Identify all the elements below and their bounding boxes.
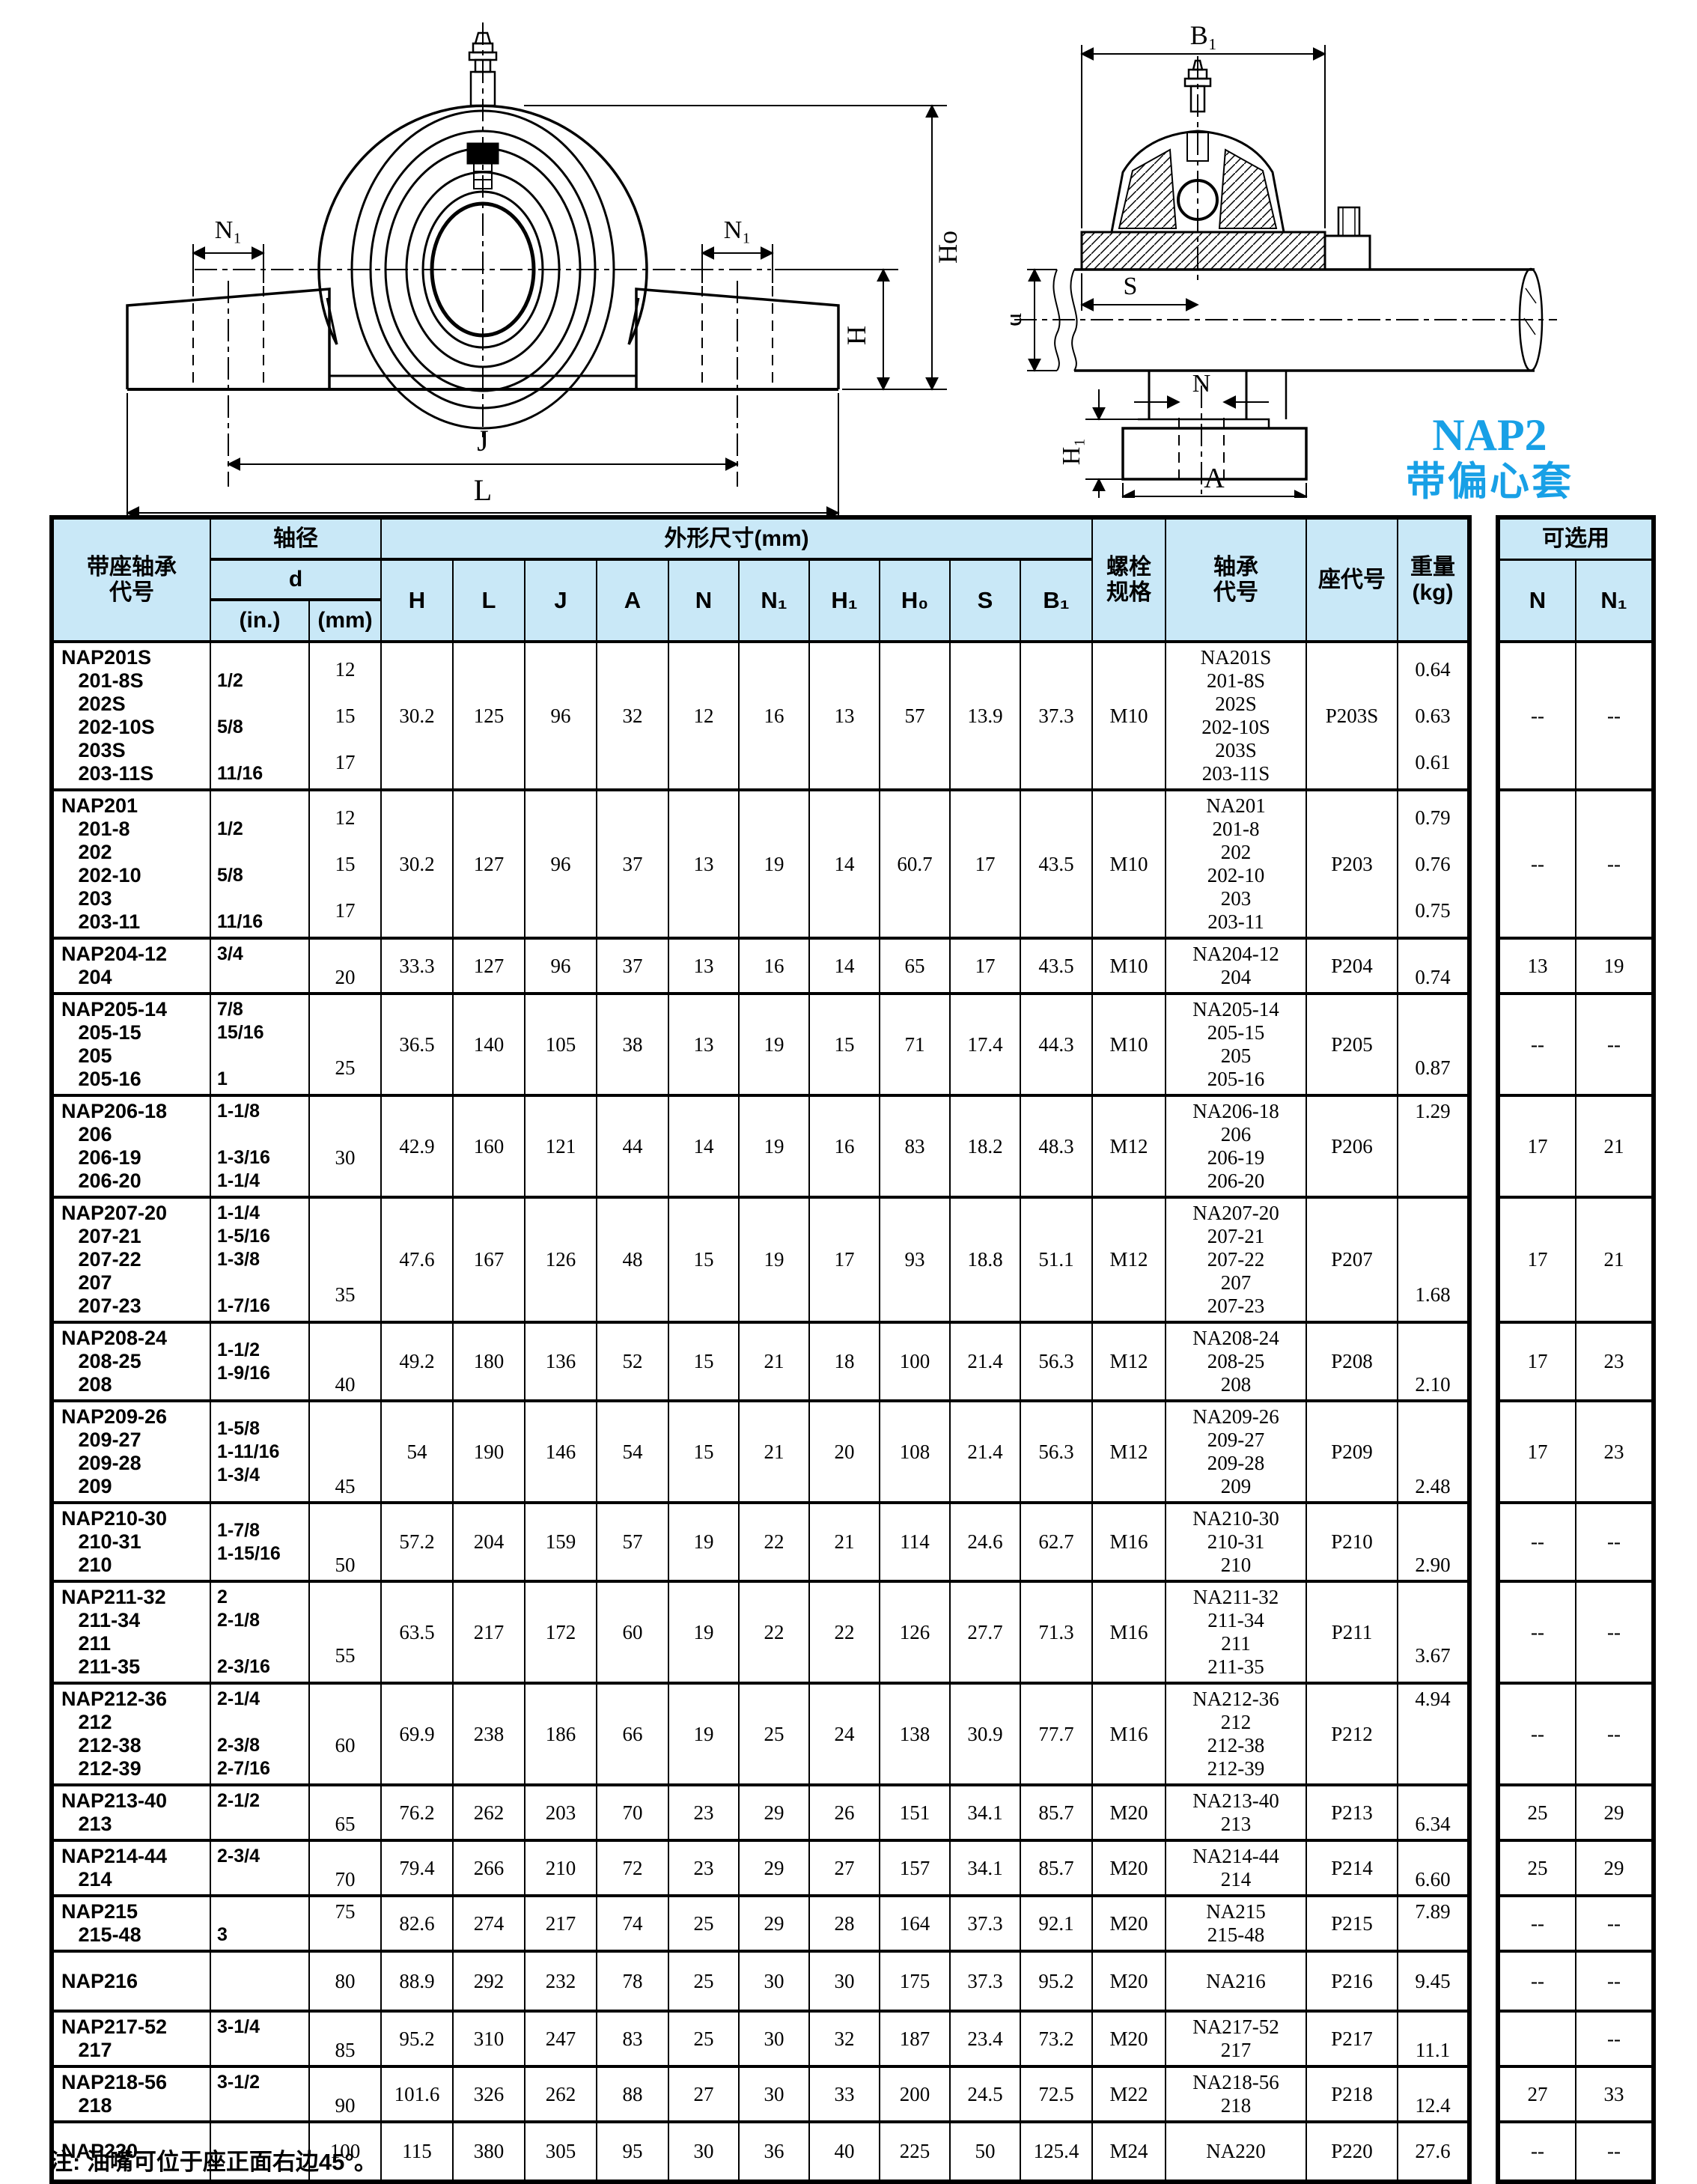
cell-d-mm: 80 — [309, 1951, 381, 2011]
cell-h: 82.6 — [381, 1896, 453, 1951]
cell-n1: 36 — [739, 2122, 809, 2182]
cell-opt-n: -- — [1498, 1503, 1576, 1581]
cell-bearing: NA210-30 210-31 210 — [1166, 1503, 1306, 1581]
cell-opt-n1: 29 — [1576, 1785, 1654, 1840]
cell-opt-n: 13 — [1498, 938, 1576, 994]
cell-code: NAP217-52 217 — [52, 2011, 210, 2066]
cell-h0: 108 — [880, 1401, 950, 1503]
table-gap — [1469, 790, 1498, 938]
cell-weight: 11.1 — [1398, 2011, 1469, 2066]
cell-n1: 30 — [739, 1951, 809, 2011]
table-row: NAP201 201-8 202 202-10 203 203-11 1/2 5… — [52, 790, 1654, 938]
cell-n: 27 — [668, 2066, 739, 2122]
table-gap — [1469, 1581, 1498, 1683]
cell-l: 180 — [453, 1322, 525, 1401]
cell-weight: 0.64 0.63 0.61 — [1398, 642, 1469, 790]
cell-h1: 17 — [809, 1197, 880, 1322]
header-bolt-spec: 螺栓 规格 — [1092, 517, 1166, 642]
cell-b1: 43.5 — [1020, 790, 1092, 938]
cell-weight: 1.68 — [1398, 1197, 1469, 1322]
cell-d-in: 1-1/4 1-5/16 1-3/8 1-7/16 — [210, 1197, 309, 1322]
cell-seat: P218 — [1306, 2066, 1398, 2122]
cell-l: 326 — [453, 2066, 525, 2122]
cell-bearing: NA206-18 206 206-19 206-20 — [1166, 1095, 1306, 1197]
cell-j: 172 — [525, 1581, 597, 1683]
cell-h: 33.3 — [381, 938, 453, 994]
cell-code: NAP205-14 205-15 205 205-16 — [52, 994, 210, 1095]
cell-h1: 21 — [809, 1503, 880, 1581]
cell-code: NAP216 — [52, 1951, 210, 2011]
cell-n1: 30 — [739, 2066, 809, 2122]
cell-bearing: NA220 — [1166, 2122, 1306, 2182]
table-row: NAP206-18 206 206-19 206-201-1/8 1-3/16 … — [52, 1095, 1654, 1197]
header-d-inch: (in.) — [210, 600, 309, 642]
cell-n1: 21 — [739, 1322, 809, 1401]
cell-a: 78 — [597, 1951, 668, 2011]
cell-h1: 27 — [809, 1840, 880, 1896]
cell-s: 17 — [950, 790, 1020, 938]
cell-bearing: NA217-52 217 — [1166, 2011, 1306, 2066]
cell-l: 167 — [453, 1197, 525, 1322]
cell-bolt: M16 — [1092, 1503, 1166, 1581]
cell-bolt: M24 — [1092, 2122, 1166, 2182]
table-gap — [1469, 1095, 1498, 1197]
table-gap — [1469, 1785, 1498, 1840]
cell-h: 36.5 — [381, 994, 453, 1095]
header-opt-n1: N₁ — [1576, 559, 1654, 642]
cell-bearing: NA201S 201-8S 202S 202-10S 203S 203-11S — [1166, 642, 1306, 790]
cell-seat: P215 — [1306, 1896, 1398, 1951]
cell-d-in: 1-5/8 1-11/16 1-3/4 — [210, 1401, 309, 1503]
cell-seat: P210 — [1306, 1503, 1398, 1581]
cell-opt-n1: -- — [1576, 1951, 1654, 2011]
cell-b1: 56.3 — [1020, 1401, 1092, 1503]
cell-b1: 37.3 — [1020, 642, 1092, 790]
header-d-mm: (mm) — [309, 600, 381, 642]
table-row: NAP209-26 209-27 209-28 2091-5/8 1-11/16… — [52, 1401, 1654, 1503]
cell-seat: P204 — [1306, 938, 1398, 994]
cell-s: 21.4 — [950, 1401, 1020, 1503]
table-header: 带座轴承 代号 轴径 外形尺寸(mm) 螺栓 规格 轴承 代号 座代号 重量 (… — [52, 517, 1654, 642]
cell-n: 19 — [668, 1581, 739, 1683]
table-gap — [1469, 517, 1498, 642]
cell-opt-n1: -- — [1576, 790, 1654, 938]
cell-bearing: NA201 201-8 202 202-10 203 203-11 — [1166, 790, 1306, 938]
cell-j: 186 — [525, 1683, 597, 1785]
cell-a: 95 — [597, 2122, 668, 2182]
cell-weight: 0.74 — [1398, 938, 1469, 994]
cell-bolt: M10 — [1092, 994, 1166, 1095]
header-housing-code: 带座轴承 代号 — [52, 517, 210, 642]
cell-h: 63.5 — [381, 1581, 453, 1683]
table-gap — [1469, 994, 1498, 1095]
cell-n1: 22 — [739, 1581, 809, 1683]
cell-weight: 9.45 — [1398, 1951, 1469, 2011]
cell-bolt: M10 — [1092, 642, 1166, 790]
cell-b1: 95.2 — [1020, 1951, 1092, 2011]
cell-b1: 44.3 — [1020, 994, 1092, 1095]
cell-j: 262 — [525, 2066, 597, 2122]
cell-d-mm: 70 — [309, 1840, 381, 1896]
table-row: NAP208-24 208-25 2081-1/2 1-9/16 4049.21… — [52, 1322, 1654, 1401]
cell-h1: 30 — [809, 1951, 880, 2011]
cell-seat: P205 — [1306, 994, 1398, 1095]
cell-opt-n: -- — [1498, 1896, 1576, 1951]
cell-seat: P220 — [1306, 2122, 1398, 2182]
cell-seat: P216 — [1306, 1951, 1398, 2011]
table-gap — [1469, 1322, 1498, 1401]
cell-s: 34.1 — [950, 1840, 1020, 1896]
cell-b1: 56.3 — [1020, 1322, 1092, 1401]
cell-n: 13 — [668, 938, 739, 994]
cell-opt-n1: -- — [1576, 1503, 1654, 1581]
cell-bolt: M16 — [1092, 1581, 1166, 1683]
cell-a: 37 — [597, 938, 668, 994]
header-seat-code: 座代号 — [1306, 517, 1398, 642]
cell-opt-n1: 21 — [1576, 1197, 1654, 1322]
cell-d-in: 1-1/8 1-3/16 1-1/4 — [210, 1095, 309, 1197]
cell-bearing: NA214-44 214 — [1166, 1840, 1306, 1896]
series-label: NAP2 带偏心套 — [1340, 410, 1639, 505]
cell-s: 17.4 — [950, 994, 1020, 1095]
cell-a: 52 — [597, 1322, 668, 1401]
cell-d-mm: 85 — [309, 2011, 381, 2066]
header-d: d — [210, 559, 381, 600]
cell-bearing: NA218-56 218 — [1166, 2066, 1306, 2122]
cell-n1: 19 — [739, 1095, 809, 1197]
cell-l: 238 — [453, 1683, 525, 1785]
cell-n: 25 — [668, 2011, 739, 2066]
cell-weight: 2.48 — [1398, 1401, 1469, 1503]
cell-h0: 114 — [880, 1503, 950, 1581]
cell-bearing: NA215 215-48 — [1166, 1896, 1306, 1951]
cell-bearing: NA213-40 213 — [1166, 1785, 1306, 1840]
cell-n: 12 — [668, 642, 739, 790]
cell-d-in: 3-1/4 — [210, 2011, 309, 2066]
cell-h1: 32 — [809, 2011, 880, 2066]
cell-h: 54 — [381, 1401, 453, 1503]
cell-h: 47.6 — [381, 1197, 453, 1322]
cell-j: 203 — [525, 1785, 597, 1840]
series-subtitle: 带偏心套 — [1340, 460, 1639, 505]
cell-n1: 25 — [739, 1683, 809, 1785]
cell-j: 146 — [525, 1401, 597, 1503]
cell-n: 19 — [668, 1683, 739, 1785]
header-weight: 重量 (kg) — [1398, 517, 1469, 642]
cell-bolt: M20 — [1092, 2011, 1166, 2066]
cell-h: 42.9 — [381, 1095, 453, 1197]
cell-b1: 72.5 — [1020, 2066, 1092, 2122]
cell-bolt: M12 — [1092, 1197, 1166, 1322]
cell-d-mm: 20 — [309, 938, 381, 994]
cell-code: NAP213-40 213 — [52, 1785, 210, 1840]
cell-bearing: NA205-14 205-15 205 205-16 — [1166, 994, 1306, 1095]
dim-label-d: d — [1011, 313, 1027, 326]
dim-label-n: N — [1192, 370, 1211, 398]
cell-j: 96 — [525, 938, 597, 994]
cell-a: 66 — [597, 1683, 668, 1785]
cell-l: 292 — [453, 1951, 525, 2011]
header-dim-s: S — [950, 559, 1020, 642]
dim-label-h: H — [841, 326, 871, 345]
cell-l: 204 — [453, 1503, 525, 1581]
cell-s: 27.7 — [950, 1581, 1020, 1683]
cell-s: 21.4 — [950, 1322, 1020, 1401]
table-row: NAP218-56 2183-1/2 90101.632626288273033… — [52, 2066, 1654, 2122]
cell-opt-n1: 21 — [1576, 1095, 1654, 1197]
cell-n: 15 — [668, 1322, 739, 1401]
cell-opt-n: 17 — [1498, 1197, 1576, 1322]
cell-d-in: 2-1/4 2-3/8 2-7/16 — [210, 1683, 309, 1785]
cell-code: NAP215 215-48 — [52, 1896, 210, 1951]
cell-h0: 175 — [880, 1951, 950, 2011]
cell-n1: 29 — [739, 1896, 809, 1951]
cell-d-in: 2 2-1/8 2-3/16 — [210, 1581, 309, 1683]
cell-h1: 26 — [809, 1785, 880, 1840]
cell-l: 217 — [453, 1581, 525, 1683]
header-dim-j: J — [525, 559, 597, 642]
cell-opt-n1: -- — [1576, 994, 1654, 1095]
cell-d-in: 3-1/2 — [210, 2066, 309, 2122]
header-opt-n: N — [1498, 559, 1576, 642]
header-bearing-code: 轴承 代号 — [1166, 517, 1306, 642]
cell-a: 83 — [597, 2011, 668, 2066]
cell-h0: 157 — [880, 1840, 950, 1896]
cell-a: 48 — [597, 1197, 668, 1322]
cell-bearing: NA212-36 212 212-38 212-39 — [1166, 1683, 1306, 1785]
cell-l: 160 — [453, 1095, 525, 1197]
cell-d-mm: 60 — [309, 1683, 381, 1785]
cell-b1: 71.3 — [1020, 1581, 1092, 1683]
cell-a: 88 — [597, 2066, 668, 2122]
cell-j: 121 — [525, 1095, 597, 1197]
cell-opt-n1: 19 — [1576, 938, 1654, 994]
main-table-body: NAP201S 201-8S 202S 202-10S 203S 203-11S… — [52, 642, 1654, 2182]
cell-l: 190 — [453, 1401, 525, 1503]
cell-d-in: 3/4 — [210, 938, 309, 994]
table-gap — [1469, 1951, 1498, 2011]
header-dim-n1: N₁ — [739, 559, 809, 642]
cell-l: 140 — [453, 994, 525, 1095]
cell-bolt: M12 — [1092, 1095, 1166, 1197]
cell-j: 305 — [525, 2122, 597, 2182]
header-dim-n: N — [668, 559, 739, 642]
cell-n: 25 — [668, 1951, 739, 2011]
table-row: NAP213-40 2132-1/2 6576.2262203702329261… — [52, 1785, 1654, 1840]
cell-n1: 30 — [739, 2011, 809, 2066]
cell-opt-n1: -- — [1576, 1683, 1654, 1785]
cell-b1: 43.5 — [1020, 938, 1092, 994]
cell-h: 88.9 — [381, 1951, 453, 2011]
cell-n: 14 — [668, 1095, 739, 1197]
cell-bearing: NA204-12 204 — [1166, 938, 1306, 994]
cell-l: 380 — [453, 2122, 525, 2182]
cell-h: 95.2 — [381, 2011, 453, 2066]
cell-n1: 16 — [739, 938, 809, 994]
cell-h0: 65 — [880, 938, 950, 994]
cell-d-in: 1/2 5/8 11/16 — [210, 790, 309, 938]
cell-d-in: 1-1/2 1-9/16 — [210, 1322, 309, 1401]
cell-n: 23 — [668, 1785, 739, 1840]
cell-bolt: M20 — [1092, 1840, 1166, 1896]
cell-bearing: NA211-32 211-34 211 211-35 — [1166, 1581, 1306, 1683]
cell-code: NAP201S 201-8S 202S 202-10S 203S 203-11S — [52, 642, 210, 790]
cell-opt-n1: -- — [1576, 2122, 1654, 2182]
cell-bolt: M22 — [1092, 2066, 1166, 2122]
cell-s: 18.2 — [950, 1095, 1020, 1197]
cell-h1: 28 — [809, 1896, 880, 1951]
cell-opt-n — [1498, 2011, 1576, 2066]
cell-opt-n: -- — [1498, 2122, 1576, 2182]
cell-s: 34.1 — [950, 1785, 1020, 1840]
cell-d-mm: 25 — [309, 994, 381, 1095]
cell-seat: P207 — [1306, 1197, 1398, 1322]
cell-a: 60 — [597, 1581, 668, 1683]
dim-label-n1-right: N₁ — [724, 216, 751, 244]
cell-bolt: M12 — [1092, 1322, 1166, 1401]
cell-h1: 40 — [809, 2122, 880, 2182]
cell-h0: 57 — [880, 642, 950, 790]
table-row: NAP215 215-48 375 82.6274217742529281643… — [52, 1896, 1654, 1951]
cell-opt-n: 17 — [1498, 1322, 1576, 1401]
cell-seat: P209 — [1306, 1401, 1398, 1503]
cell-bolt: M12 — [1092, 1401, 1166, 1503]
cell-j: 159 — [525, 1503, 597, 1581]
cell-d-mm: 40 — [309, 1322, 381, 1401]
cell-s: 50 — [950, 2122, 1020, 2182]
cell-b1: 77.7 — [1020, 1683, 1092, 1785]
datasheet-page: N₁ N₁ H Ho J L — [0, 0, 1697, 2184]
cell-bolt: M10 — [1092, 938, 1166, 994]
cell-opt-n1: -- — [1576, 2011, 1654, 2066]
cell-weight: 6.34 — [1398, 1785, 1469, 1840]
cell-bolt: M20 — [1092, 1896, 1166, 1951]
cell-j: 126 — [525, 1197, 597, 1322]
cell-seat: P213 — [1306, 1785, 1398, 1840]
cell-a: 32 — [597, 642, 668, 790]
cell-seat: P208 — [1306, 1322, 1398, 1401]
cell-opt-n: -- — [1498, 1951, 1576, 2011]
cell-n: 13 — [668, 790, 739, 938]
cell-n: 23 — [668, 1840, 739, 1896]
table-gap — [1469, 2066, 1498, 2122]
header-dim-h1: H₁ — [809, 559, 880, 642]
cell-n1: 19 — [739, 994, 809, 1095]
table-row: NAP214-44 2142-3/4 7079.4266210722329271… — [52, 1840, 1654, 1896]
cell-l: 127 — [453, 790, 525, 938]
cell-d-mm: 55 — [309, 1581, 381, 1683]
dimension-table: 带座轴承 代号 轴径 外形尺寸(mm) 螺栓 规格 轴承 代号 座代号 重量 (… — [49, 515, 1656, 2184]
cell-opt-n1: 33 — [1576, 2066, 1654, 2122]
cell-n1: 19 — [739, 790, 809, 938]
cell-d-mm: 12 15 17 — [309, 790, 381, 938]
cell-b1: 85.7 — [1020, 1840, 1092, 1896]
cell-opt-n1: 23 — [1576, 1322, 1654, 1401]
cell-h0: 126 — [880, 1581, 950, 1683]
cell-d-in: 7/8 15/16 1 — [210, 994, 309, 1095]
cell-d-in: 2-3/4 — [210, 1840, 309, 1896]
header-dim-a: A — [597, 559, 668, 642]
table-row: NAP207-20 207-21 207-22 207 207-231-1/4 … — [52, 1197, 1654, 1322]
table-gap — [1469, 1401, 1498, 1503]
cell-n1: 21 — [739, 1401, 809, 1503]
cell-l: 127 — [453, 938, 525, 994]
table-row: NAP210-30 210-31 2101-7/8 1-15/16 5057.2… — [52, 1503, 1654, 1581]
cell-bearing: NA216 — [1166, 1951, 1306, 2011]
cell-opt-n: 27 — [1498, 2066, 1576, 2122]
cell-b1: 51.1 — [1020, 1197, 1092, 1322]
dim-label-j: J — [477, 424, 489, 457]
cell-opt-n: -- — [1498, 994, 1576, 1095]
cell-code: NAP207-20 207-21 207-22 207 207-23 — [52, 1197, 210, 1322]
cell-h0: 164 — [880, 1896, 950, 1951]
cell-a: 74 — [597, 1896, 668, 1951]
cell-code: NAP214-44 214 — [52, 1840, 210, 1896]
cell-n1: 29 — [739, 1840, 809, 1896]
cell-opt-n1: 23 — [1576, 1401, 1654, 1503]
cell-a: 57 — [597, 1503, 668, 1581]
cell-d-mm: 75 — [309, 1896, 381, 1951]
table-row: NAP217-52 2173-1/4 8595.2310247832530321… — [52, 2011, 1654, 2066]
cell-d-in: 2-1/2 — [210, 1785, 309, 1840]
cell-seat: P212 — [1306, 1683, 1398, 1785]
cell-opt-n: -- — [1498, 642, 1576, 790]
cell-weight: 2.10 — [1398, 1322, 1469, 1401]
header-dimensions-group: 外形尺寸(mm) — [381, 517, 1092, 559]
cell-h0: 93 — [880, 1197, 950, 1322]
cell-j: 247 — [525, 2011, 597, 2066]
cell-l: 125 — [453, 642, 525, 790]
cell-d-mm: 35 — [309, 1197, 381, 1322]
cell-b1: 62.7 — [1020, 1503, 1092, 1581]
cell-weight: 4.94 — [1398, 1683, 1469, 1785]
cell-h: 49.2 — [381, 1322, 453, 1401]
cell-n1: 19 — [739, 1197, 809, 1322]
cell-bearing: NA208-24 208-25 208 — [1166, 1322, 1306, 1401]
cell-h1: 14 — [809, 790, 880, 938]
cell-h0: 200 — [880, 2066, 950, 2122]
cell-weight: 0.87 — [1398, 994, 1469, 1095]
cell-code: NAP209-26 209-27 209-28 209 — [52, 1401, 210, 1503]
table-row: NAP205-14 205-15 205 205-167/8 15/16 1 2… — [52, 994, 1654, 1095]
cell-opt-n: -- — [1498, 790, 1576, 938]
cell-d-mm: 30 — [309, 1095, 381, 1197]
cell-s: 37.3 — [950, 1951, 1020, 2011]
cell-h1: 14 — [809, 938, 880, 994]
cell-b1: 125.4 — [1020, 2122, 1092, 2182]
cell-a: 70 — [597, 1785, 668, 1840]
cell-h: 101.6 — [381, 2066, 453, 2122]
cell-h0: 83 — [880, 1095, 950, 1197]
cell-j: 105 — [525, 994, 597, 1095]
cell-bolt: M20 — [1092, 1951, 1166, 2011]
cell-j: 96 — [525, 642, 597, 790]
cell-j: 217 — [525, 1896, 597, 1951]
cell-code: NAP206-18 206 206-19 206-20 — [52, 1095, 210, 1197]
table-gap — [1469, 1503, 1498, 1581]
cell-code: NAP208-24 208-25 208 — [52, 1322, 210, 1401]
cell-code: NAP212-36 212 212-38 212-39 — [52, 1683, 210, 1785]
header-dim-l: L — [453, 559, 525, 642]
dim-label-a: A — [1204, 463, 1225, 494]
cell-a: 38 — [597, 994, 668, 1095]
cell-n: 30 — [668, 2122, 739, 2182]
cell-code: NAP211-32 211-34 211 211-35 — [52, 1581, 210, 1683]
table-gap — [1469, 1683, 1498, 1785]
dim-label-n1-left: N₁ — [215, 216, 242, 244]
cell-opt-n: 25 — [1498, 1840, 1576, 1896]
cell-s: 24.5 — [950, 2066, 1020, 2122]
